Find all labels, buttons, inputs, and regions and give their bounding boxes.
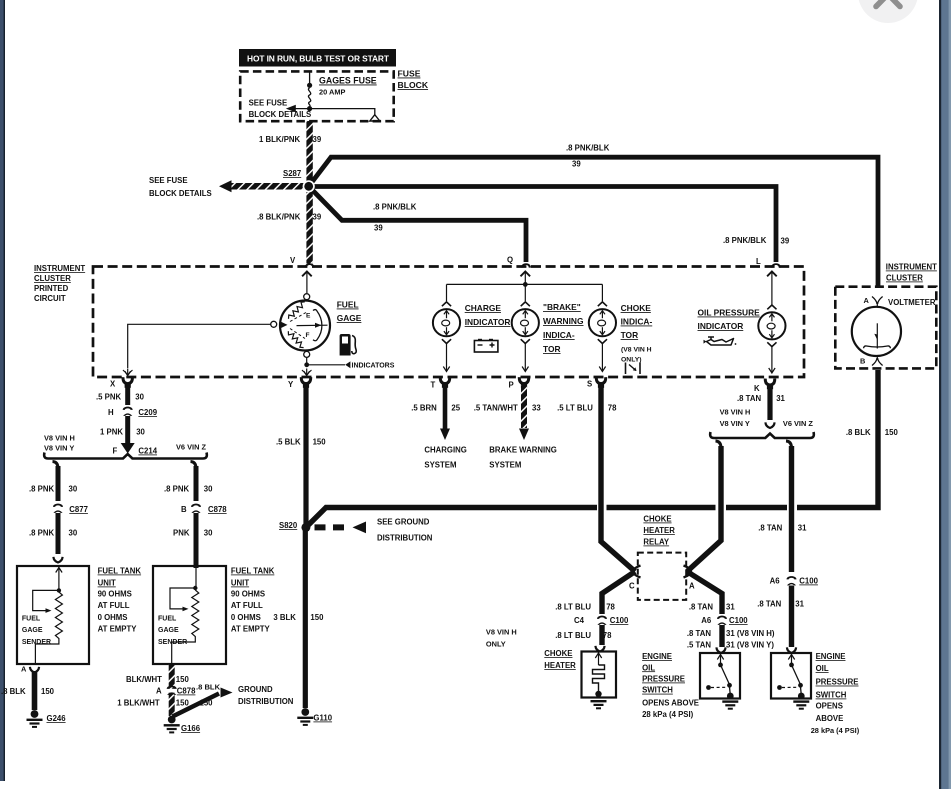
svg-text:CHARGING: CHARGING xyxy=(424,446,466,455)
svg-text:OPENS: OPENS xyxy=(816,701,843,710)
svg-text:A6: A6 xyxy=(701,616,712,625)
svg-text:X: X xyxy=(110,380,116,389)
svg-text:V8 VIN Y: V8 VIN Y xyxy=(720,419,750,428)
svg-text:SYSTEM: SYSTEM xyxy=(489,461,521,470)
svg-text:V6 VIN Z: V6 VIN Z xyxy=(176,443,206,452)
svg-text:.8 PNK: .8 PNK xyxy=(29,529,54,538)
svg-text:OPENS ABOVE: OPENS ABOVE xyxy=(642,699,699,708)
svg-text:A: A xyxy=(864,296,870,305)
svg-text:PRESSURE: PRESSURE xyxy=(816,678,859,687)
svg-text:150: 150 xyxy=(200,699,214,708)
svg-text:31: 31 xyxy=(798,524,807,533)
svg-text:.8 BLK: .8 BLK xyxy=(1,687,26,696)
svg-text:CHOKE: CHOKE xyxy=(544,649,572,658)
svg-text:INDICA-: INDICA- xyxy=(543,330,575,340)
svg-text:UNIT: UNIT xyxy=(98,579,116,588)
svg-text:31: 31 xyxy=(726,603,735,612)
svg-text:GAGE: GAGE xyxy=(337,313,362,323)
svg-text:30: 30 xyxy=(135,393,144,402)
svg-text:G166: G166 xyxy=(181,724,201,733)
svg-text:V8 VIN H: V8 VIN H xyxy=(720,408,751,417)
svg-text:.5 BLK: .5 BLK xyxy=(276,438,301,447)
svg-text:S820: S820 xyxy=(279,521,298,530)
svg-text:1 BLK/PNK: 1 BLK/PNK xyxy=(259,135,301,144)
svg-text:C100: C100 xyxy=(729,616,748,625)
svg-text:INSTRUMENT: INSTRUMENT xyxy=(886,263,937,272)
svg-text:S287: S287 xyxy=(283,169,301,178)
svg-text:GAGE: GAGE xyxy=(22,627,43,634)
svg-text:DISTRIBUTION: DISTRIBUTION xyxy=(377,534,433,543)
svg-text:A6: A6 xyxy=(770,577,781,586)
svg-text:Q: Q xyxy=(507,256,513,265)
svg-text:RELAY: RELAY xyxy=(643,538,670,547)
svg-text:90 OHMS: 90 OHMS xyxy=(231,590,265,599)
svg-text:VOLTMETER: VOLTMETER xyxy=(888,298,936,307)
svg-text:BLK/WHT: BLK/WHT xyxy=(126,675,162,684)
svg-text:28 kPa (4 PSI): 28 kPa (4 PSI) xyxy=(642,710,694,719)
svg-text:FUEL TANK: FUEL TANK xyxy=(231,567,275,576)
svg-text:.8 PNK: .8 PNK xyxy=(29,485,54,494)
svg-text:T: T xyxy=(431,381,436,390)
svg-text:OIL PRESSURE: OIL PRESSURE xyxy=(698,308,761,318)
svg-text:31 (V8 VIN H): 31 (V8 VIN H) xyxy=(726,629,775,638)
svg-text:ABOVE: ABOVE xyxy=(816,714,844,723)
svg-text:ENGINE: ENGINE xyxy=(642,652,672,661)
svg-text:.8 TAN: .8 TAN xyxy=(737,394,761,403)
svg-text:CIRCUIT: CIRCUIT xyxy=(34,294,66,303)
svg-text:SYSTEM: SYSTEM xyxy=(424,461,456,470)
svg-text:A: A xyxy=(689,582,695,591)
svg-text:1 BLK/WHT: 1 BLK/WHT xyxy=(117,699,160,708)
svg-text:FUEL: FUEL xyxy=(158,616,177,623)
svg-text:78: 78 xyxy=(606,603,615,612)
svg-text:30: 30 xyxy=(204,485,213,494)
svg-text:30: 30 xyxy=(136,428,145,437)
svg-text:K: K xyxy=(754,384,760,393)
svg-text:39: 39 xyxy=(313,135,322,144)
svg-text:.8 TAN: .8 TAN xyxy=(689,603,713,612)
svg-text:TOR: TOR xyxy=(621,330,639,340)
svg-text:150: 150 xyxy=(41,687,55,696)
svg-text:HOT IN RUN, BULB TEST OR START: HOT IN RUN, BULB TEST OR START xyxy=(247,54,390,64)
svg-text:.5 PNK: .5 PNK xyxy=(96,393,121,402)
svg-text:C877: C877 xyxy=(69,505,88,514)
svg-text:GAGES FUSE: GAGES FUSE xyxy=(319,76,377,86)
svg-text:SEE FUSE: SEE FUSE xyxy=(149,176,188,185)
svg-text:30: 30 xyxy=(204,529,213,538)
svg-text:CLUSTER: CLUSTER xyxy=(34,274,71,283)
svg-text:28 kPa (4 PSI): 28 kPa (4 PSI) xyxy=(811,726,860,735)
svg-text:C: C xyxy=(629,582,635,591)
svg-text:V: V xyxy=(290,256,296,265)
svg-text:.8 BLK/PNK: .8 BLK/PNK xyxy=(257,213,301,222)
svg-text:OIL: OIL xyxy=(642,663,655,672)
svg-text:30: 30 xyxy=(69,529,78,538)
svg-text:BLOCK: BLOCK xyxy=(398,80,429,90)
svg-text:.8 TAN: .8 TAN xyxy=(687,629,711,638)
svg-text:.5 TAN: .5 TAN xyxy=(687,641,711,650)
svg-text:BLOCK DETAILS: BLOCK DETAILS xyxy=(249,110,312,119)
svg-text:AT EMPTY: AT EMPTY xyxy=(98,625,138,634)
svg-text:31: 31 xyxy=(776,394,785,403)
svg-text:150: 150 xyxy=(176,699,190,708)
svg-text:150: 150 xyxy=(885,428,899,437)
svg-text:90 OHMS: 90 OHMS xyxy=(98,590,132,599)
svg-text:SENDER: SENDER xyxy=(158,639,187,646)
svg-text:20 AMP: 20 AMP xyxy=(319,88,345,97)
svg-text:INSTRUMENT: INSTRUMENT xyxy=(34,264,85,273)
svg-text:DISTRIBUTION: DISTRIBUTION xyxy=(238,697,294,706)
svg-text:PNK: PNK xyxy=(173,529,190,538)
svg-text:B: B xyxy=(860,357,865,366)
svg-text:A: A xyxy=(21,665,27,674)
svg-text:HEATER: HEATER xyxy=(544,661,576,670)
svg-text:39: 39 xyxy=(572,160,581,169)
svg-text:78: 78 xyxy=(608,404,617,413)
svg-text:P: P xyxy=(509,381,514,390)
svg-text:ONLY: ONLY xyxy=(486,640,506,649)
svg-text:.8 PNK/BLK: .8 PNK/BLK xyxy=(723,236,767,245)
svg-text:GROUND: GROUND xyxy=(238,685,273,694)
svg-text:"BRAKE": "BRAKE" xyxy=(543,302,581,312)
svg-text:SEE FUSE: SEE FUSE xyxy=(249,99,288,108)
svg-text:Y: Y xyxy=(288,380,294,389)
svg-text:.8 LT BLU: .8 LT BLU xyxy=(555,603,591,612)
svg-text:H: H xyxy=(108,408,114,417)
svg-text:F: F xyxy=(113,447,118,456)
svg-text:INDICATORS: INDICATORS xyxy=(352,363,395,370)
svg-text:39: 39 xyxy=(781,237,790,246)
svg-text:INDICA-: INDICA- xyxy=(621,317,653,327)
svg-text:S: S xyxy=(587,380,592,389)
svg-text:.5 BRN: .5 BRN xyxy=(411,404,437,413)
svg-text:.8 PNK/BLK: .8 PNK/BLK xyxy=(566,144,610,153)
svg-text:WARNING: WARNING xyxy=(543,316,583,326)
svg-text:SEE GROUND: SEE GROUND xyxy=(377,518,430,527)
svg-text:0 OHMS: 0 OHMS xyxy=(231,613,261,622)
svg-text:V6 VIN Z: V6 VIN Z xyxy=(783,419,813,428)
svg-text:C878: C878 xyxy=(177,687,196,696)
svg-text:C4: C4 xyxy=(574,616,585,625)
svg-text:.8 TAN: .8 TAN xyxy=(758,524,782,533)
svg-text:INDICATOR: INDICATOR xyxy=(698,321,744,331)
svg-text:V8 VIN Y: V8 VIN Y xyxy=(44,444,74,453)
svg-text:C100: C100 xyxy=(610,616,629,625)
svg-text:OIL: OIL xyxy=(816,664,829,673)
svg-text:G246: G246 xyxy=(47,714,67,723)
svg-text:.8 BLK: .8 BLK xyxy=(196,683,221,692)
svg-text:BLOCK DETAILS: BLOCK DETAILS xyxy=(149,189,212,198)
svg-text:39: 39 xyxy=(313,213,322,222)
svg-text:.8 PNK: .8 PNK xyxy=(164,485,189,494)
svg-text:C214: C214 xyxy=(138,447,157,456)
svg-text:C878: C878 xyxy=(208,505,227,514)
svg-text:CHOKE: CHOKE xyxy=(643,515,671,524)
svg-text:BRAKE WARNING: BRAKE WARNING xyxy=(489,446,557,455)
svg-text:25: 25 xyxy=(451,404,460,413)
svg-text:ENGINE: ENGINE xyxy=(816,652,846,661)
svg-text:FUEL: FUEL xyxy=(337,300,359,310)
svg-text:PRINTED: PRINTED xyxy=(34,284,69,293)
svg-text:(V8 VIN H: (V8 VIN H xyxy=(621,347,652,354)
svg-text:L: L xyxy=(756,257,761,266)
svg-text:C209: C209 xyxy=(138,408,157,417)
svg-text:A: A xyxy=(156,687,162,696)
svg-text:AT FULL: AT FULL xyxy=(98,601,130,610)
svg-text:GAGE: GAGE xyxy=(158,627,179,634)
svg-text:F: F xyxy=(306,332,310,339)
svg-text:B: B xyxy=(181,505,187,514)
svg-text:FUEL: FUEL xyxy=(22,616,41,623)
svg-text:CLUSTER: CLUSTER xyxy=(886,274,923,283)
svg-text:.5 LT BLU: .5 LT BLU xyxy=(557,404,593,413)
svg-text:ONLY): ONLY) xyxy=(621,357,642,364)
svg-text:.8 TAN: .8 TAN xyxy=(757,599,781,608)
svg-text:78: 78 xyxy=(603,631,612,640)
svg-text:150: 150 xyxy=(313,438,327,447)
svg-text:PRESSURE: PRESSURE xyxy=(642,675,685,684)
svg-text:TOR: TOR xyxy=(543,344,561,354)
svg-text:.8 BLK: .8 BLK xyxy=(846,428,871,437)
svg-text:.8 LT BLU: .8 LT BLU xyxy=(555,631,591,640)
svg-text:.5 TAN/WHT: .5 TAN/WHT xyxy=(474,404,518,413)
svg-text:V8 VIN H: V8 VIN H xyxy=(486,628,517,637)
svg-text:SWITCH: SWITCH xyxy=(642,686,673,695)
svg-text:UNIT: UNIT xyxy=(231,579,249,588)
svg-text:V8 VIN H: V8 VIN H xyxy=(44,434,75,443)
svg-text:E: E xyxy=(306,313,311,320)
svg-text:G110: G110 xyxy=(313,714,332,723)
svg-text:150: 150 xyxy=(310,613,324,622)
svg-text:33: 33 xyxy=(532,404,541,413)
svg-text:AT FULL: AT FULL xyxy=(231,601,263,610)
svg-text:31 (V8 VIN Y): 31 (V8 VIN Y) xyxy=(726,641,774,650)
svg-text:C100: C100 xyxy=(799,577,818,586)
svg-text:3 BLK: 3 BLK xyxy=(273,613,296,622)
svg-text:AT EMPTY: AT EMPTY xyxy=(231,625,271,634)
svg-text:INDICATOR: INDICATOR xyxy=(465,317,511,327)
svg-text:FUSE: FUSE xyxy=(398,69,421,79)
svg-text:HEATER: HEATER xyxy=(643,526,675,535)
svg-text:150: 150 xyxy=(176,675,190,684)
svg-text:1 PNK: 1 PNK xyxy=(100,428,123,437)
svg-text:SENDER: SENDER xyxy=(22,639,51,646)
svg-text:SWITCH: SWITCH xyxy=(816,691,847,700)
svg-text:31: 31 xyxy=(795,599,804,608)
svg-text:CHARGE: CHARGE xyxy=(465,303,502,313)
svg-text:CHOKE: CHOKE xyxy=(621,303,652,313)
svg-text:39: 39 xyxy=(374,224,383,233)
svg-text:.8 PNK/BLK: .8 PNK/BLK xyxy=(373,203,417,212)
svg-text:FUEL TANK: FUEL TANK xyxy=(98,567,142,576)
svg-text:30: 30 xyxy=(69,485,78,494)
svg-text:0 OHMS: 0 OHMS xyxy=(98,613,128,622)
